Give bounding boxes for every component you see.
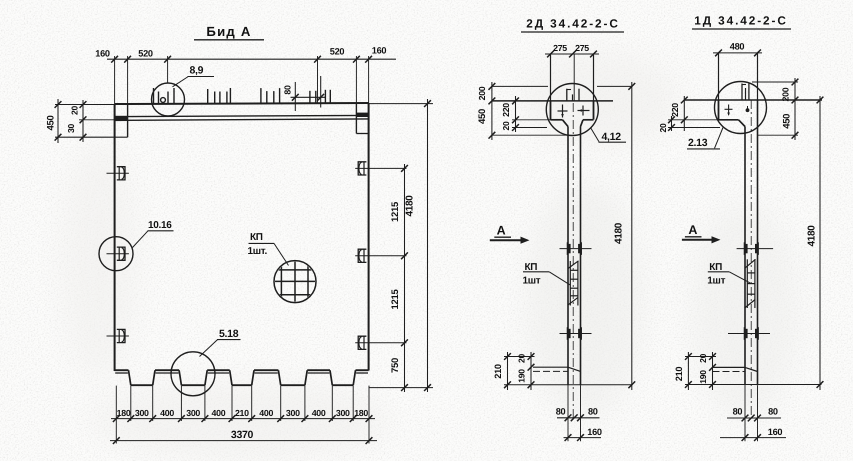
svg-text:Бид А: Бид А [206,24,251,39]
svg-text:2.13: 2.13 [688,137,708,149]
svg-text:КП: КП [525,262,538,273]
svg-text:20: 20 [517,354,527,363]
svg-text:520: 520 [138,49,153,59]
svg-text:275: 275 [575,43,589,53]
svg-text:160: 160 [372,46,387,56]
svg-text:20: 20 [658,123,668,132]
svg-text:80: 80 [768,407,778,417]
svg-text:1215: 1215 [390,201,401,222]
svg-text:300: 300 [186,408,200,418]
svg-text:300: 300 [336,408,350,418]
svg-text:190: 190 [698,370,708,384]
svg-text:2Д 34.42-2-С: 2Д 34.42-2-С [526,17,620,31]
svg-text:300: 300 [286,408,300,418]
svg-text:20: 20 [698,353,708,362]
svg-text:400: 400 [212,408,226,418]
svg-text:20: 20 [501,121,511,130]
svg-text:200: 200 [780,87,790,101]
svg-text:КП: КП [709,262,722,273]
svg-text:190: 190 [517,369,527,383]
svg-text:4180: 4180 [807,225,818,247]
svg-text:А: А [497,224,506,238]
svg-text:160: 160 [768,427,783,437]
svg-text:30: 30 [66,124,76,133]
svg-text:80: 80 [282,85,292,95]
svg-text:480: 480 [730,42,745,52]
svg-text:80: 80 [556,407,566,417]
svg-text:1215: 1215 [390,289,401,310]
svg-text:1шт.: 1шт. [248,246,268,257]
svg-text:8,9: 8,9 [190,65,204,77]
svg-text:КП: КП [250,232,263,243]
svg-text:400: 400 [160,408,174,418]
svg-text:400: 400 [259,408,273,418]
svg-text:275: 275 [553,43,567,53]
svg-text:180: 180 [354,408,368,418]
svg-text:450: 450 [46,116,57,131]
svg-text:210: 210 [235,408,249,418]
svg-text:210: 210 [493,364,503,379]
svg-text:180: 180 [117,408,131,418]
svg-text:1шт: 1шт [707,275,725,286]
svg-text:210: 210 [674,367,684,382]
svg-text:4,12: 4,12 [602,131,622,143]
svg-text:220: 220 [501,103,511,117]
svg-text:220: 220 [670,103,680,117]
svg-text:750: 750 [390,358,401,373]
svg-text:4180: 4180 [405,195,416,217]
svg-text:А: А [688,223,697,237]
svg-text:160: 160 [95,49,110,59]
svg-text:300: 300 [135,408,149,418]
svg-text:400: 400 [312,408,326,418]
svg-text:450: 450 [477,109,488,124]
svg-text:200: 200 [477,86,487,100]
svg-text:1шт: 1шт [523,275,541,286]
svg-text:520: 520 [330,47,345,57]
svg-text:20: 20 [70,106,80,115]
svg-text:1Д 34.42-2-С: 1Д 34.42-2-С [694,14,788,28]
svg-text:80: 80 [588,407,598,417]
svg-text:10.16: 10.16 [148,220,172,231]
svg-text:4180: 4180 [614,222,625,244]
svg-text:80: 80 [733,407,743,417]
svg-text:160: 160 [587,427,602,437]
svg-text:3370: 3370 [231,429,254,441]
svg-text:5.18: 5.18 [219,328,239,340]
svg-text:450: 450 [781,114,792,129]
